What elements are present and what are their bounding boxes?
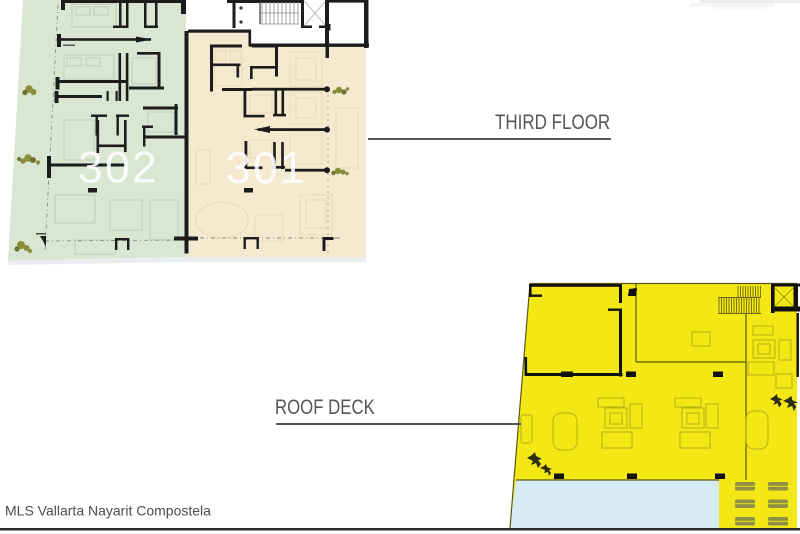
svg-text:THIRD FLOOR: THIRD FLOOR bbox=[495, 111, 610, 134]
svg-text:ROOF DECK: ROOF DECK bbox=[275, 396, 375, 419]
svg-text:301: 301 bbox=[226, 144, 307, 193]
svg-text:302: 302 bbox=[78, 144, 159, 193]
svg-text:MLS Vallarta Nayarit Compostel: MLS Vallarta Nayarit Compostela bbox=[5, 503, 211, 519]
